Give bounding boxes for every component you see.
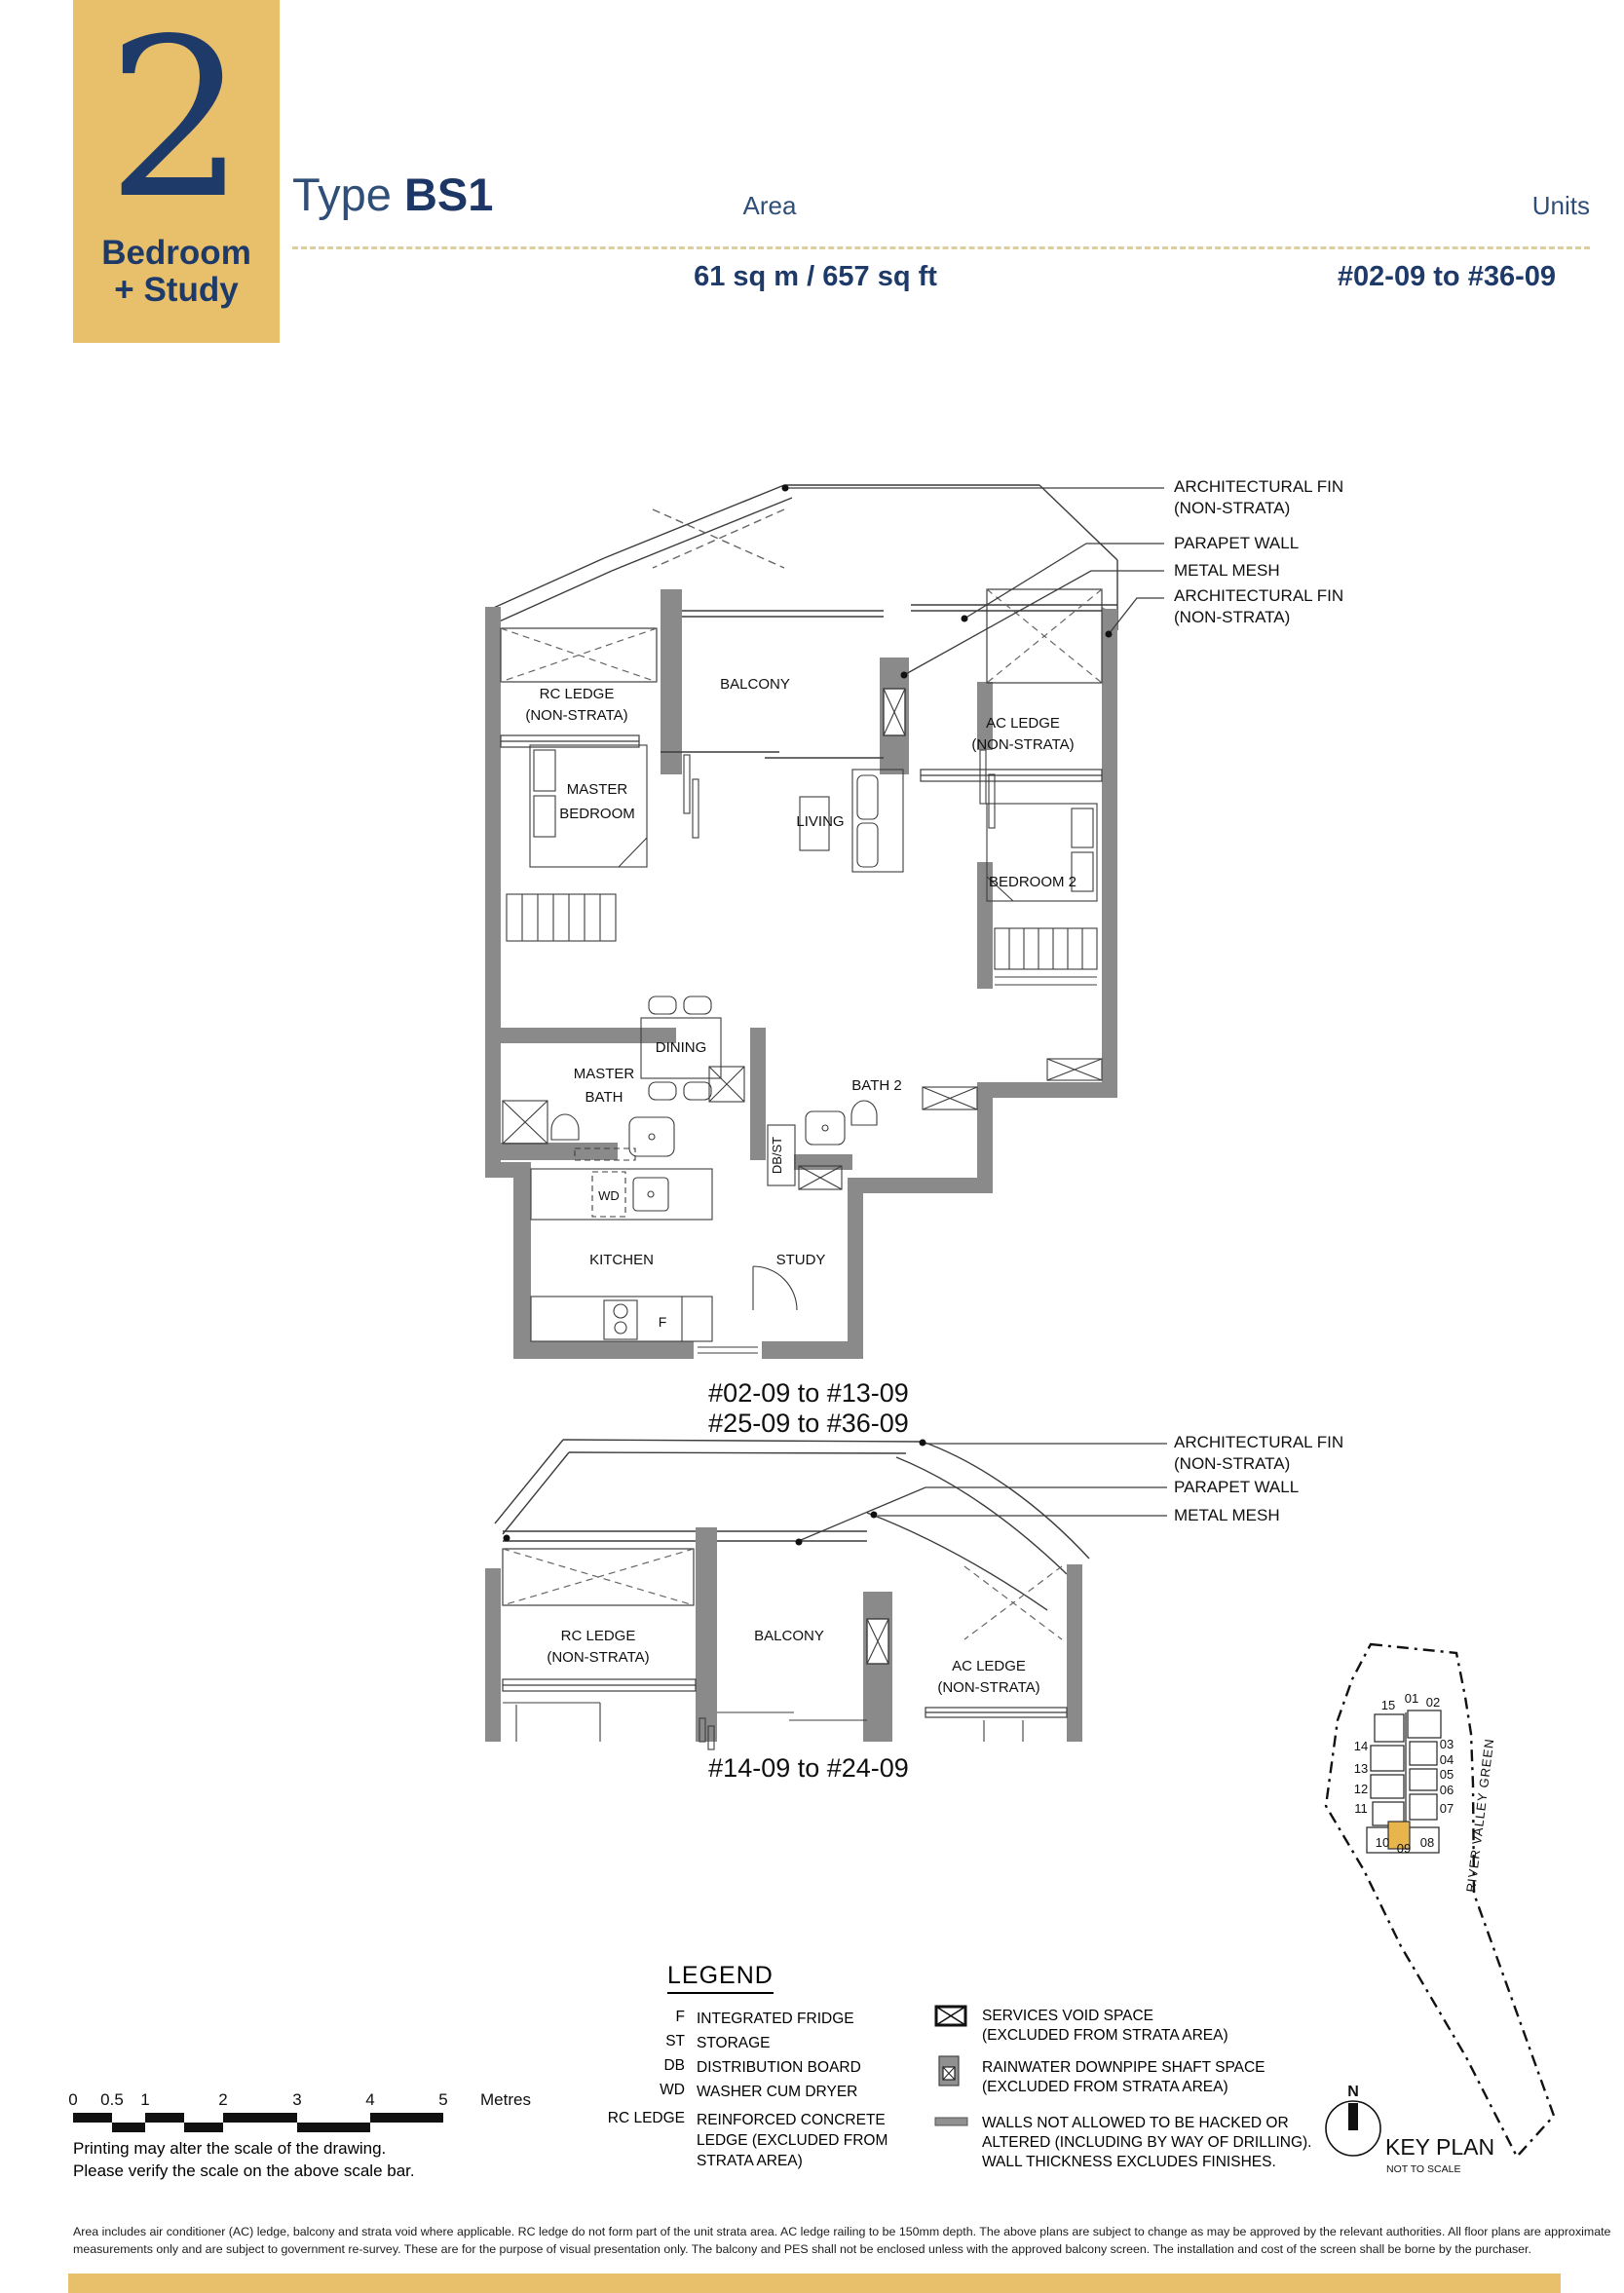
label-bedroom2: BEDROOM 2 <box>989 874 1076 890</box>
legend-desc-f: INTEGRATED FRIDGE <box>697 2009 854 2029</box>
svg-text:0: 0 <box>68 2090 77 2109</box>
cutoff-room-lines <box>503 1703 1023 1749</box>
label-wd: WD <box>598 1188 620 1203</box>
area-value: 61 sq m / 657 sq ft <box>645 261 986 293</box>
label-rc-ledge-p2: RC LEDGE <box>561 1628 636 1644</box>
legend-key-wd: WD <box>595 2082 685 2099</box>
legend-key-db: DB <box>595 2057 685 2075</box>
unit-07: 07 <box>1440 1801 1454 1816</box>
unit-15: 15 <box>1381 1698 1395 1712</box>
scale-unit: Metres <box>480 2090 531 2109</box>
label-master-bath-2: BATH <box>585 1089 623 1106</box>
label-living: LIVING <box>796 813 844 830</box>
scale-note-1: Printing may alter the scale of the draw… <box>73 2139 386 2159</box>
fin-roof-outline-2 <box>495 1440 1089 1610</box>
label-rc-ledge-2: (NON-STRATA) <box>525 707 627 724</box>
rainwater-downpipe-icon <box>938 2055 960 2086</box>
unit-03: 03 <box>1440 1737 1454 1751</box>
scale-bar-labels: 0 0.5 1 2 3 4 5 Metres <box>68 2090 531 2109</box>
road-label: RIVER VALLEY GREEN <box>1463 1738 1496 1894</box>
key-plan: 15 01 02 14 03 13 04 05 12 06 11 07 10 0… <box>1320 1636 1622 2201</box>
unit-05: 05 <box>1440 1767 1454 1782</box>
unit-14: 14 <box>1354 1739 1368 1753</box>
svg-text:5: 5 <box>438 2090 447 2109</box>
callout-dots <box>782 485 1113 679</box>
walls <box>485 589 1117 1359</box>
parapet-lines <box>661 605 1117 617</box>
label-master-bath: MASTER <box>574 1066 635 1082</box>
unit-12: 12 <box>1354 1782 1368 1796</box>
master-bed <box>507 745 699 941</box>
unit-10: 10 <box>1376 1835 1389 1850</box>
svg-text:1: 1 <box>140 2090 149 2109</box>
bedroom2-furniture <box>987 804 1097 985</box>
label-study: STUDY <box>776 1252 826 1268</box>
scale-bar: 0 0.5 1 2 3 4 5 Metres <box>54 2087 541 2141</box>
legend-rainwater: RAINWATER DOWNPIPE SHAFT SPACE(EXCLUDED … <box>982 2058 1265 2097</box>
north-label: N <box>1347 2084 1359 2100</box>
legend-desc-rcledge: REINFORCED CONCRETE LEDGE (EXCLUDED FROM… <box>697 2110 888 2171</box>
legend-desc-wd: WASHER CUM DRYER <box>697 2082 857 2102</box>
svg-text:2: 2 <box>218 2090 227 2109</box>
label-kitchen: KITCHEN <box>589 1252 654 1268</box>
label-master-bedroom: MASTER <box>567 781 628 798</box>
scale-note-2: Please verify the scale on the above sca… <box>73 2161 415 2181</box>
badge-label-line1: Bedroom <box>73 235 280 272</box>
label-ac-ledge-2: (NON-STRATA) <box>971 736 1074 753</box>
north-arrow-icon: N <box>1326 2084 1380 2156</box>
unit-09: 09 <box>1397 1841 1411 1856</box>
label-rc-ledge-p2-2: (NON-STRATA) <box>547 1649 649 1666</box>
legend-key-f: F <box>595 2009 685 2026</box>
keyplan-subtitle: NOT TO SCALE <box>1386 2163 1460 2175</box>
callout-fin-p2: ARCHITECTURAL FIN(NON-STRATA) <box>1174 1432 1343 1475</box>
callout-parapet-p2: PARAPET WALL <box>1174 1477 1299 1498</box>
parapet-lines-2 <box>503 1531 867 1541</box>
legend-desc-st: STORAGE <box>697 2033 771 2053</box>
balcony-sliding-door <box>661 752 884 758</box>
units-column-label: Units <box>1532 191 1590 221</box>
units-value: #02-09 to #36-09 <box>1338 261 1556 293</box>
svg-text:4: 4 <box>365 2090 374 2109</box>
legend-services-void: SERVICES VOID SPACE(EXCLUDED FROM STRATA… <box>982 2007 1228 2046</box>
badge-label-line2: + Study <box>73 272 280 309</box>
label-fridge: F <box>659 1314 667 1330</box>
keyplan-title: KEY PLAN <box>1385 2134 1494 2160</box>
floorplan-page: 2 Bedroom + Study Type BS1 Area Units 61… <box>0 0 1624 2293</box>
floor-plan-upper: RC LEDGE (NON-STRATA) BALCONY AC LEDGE (… <box>458 443 1169 1417</box>
label-dbst: DB/ST <box>770 1137 784 1174</box>
label-ac-ledge-p2: AC LEDGE <box>952 1658 1026 1674</box>
label-ac-ledge: AC LEDGE <box>986 715 1060 732</box>
plan2-caption: #14-09 to #24-09 <box>662 1753 955 1784</box>
floor-plan-lower: RC LEDGE (NON-STRATA) BALCONY AC LEDGE (… <box>438 1420 1169 1756</box>
callout-parapet1: PARAPET WALL <box>1174 533 1299 554</box>
svg-text:3: 3 <box>292 2090 301 2109</box>
type-title: Type BS1 <box>292 168 493 221</box>
svg-text:0.5: 0.5 <box>100 2090 124 2109</box>
rc-ledge-hatch-2 <box>503 1549 696 1691</box>
label-ac-ledge-p2-2: (NON-STRATA) <box>937 1679 1039 1696</box>
header-divider <box>292 246 1590 249</box>
unit-06: 06 <box>1440 1783 1454 1797</box>
legend-title: LEGEND <box>667 1962 774 1994</box>
area-column-label: Area <box>682 191 857 221</box>
label-rc-ledge: RC LEDGE <box>540 686 615 702</box>
callout-leaders-2 <box>801 1444 1167 1540</box>
unit-13: 13 <box>1354 1761 1368 1776</box>
label-bath2: BATH 2 <box>851 1077 901 1094</box>
unit-11: 11 <box>1354 1801 1368 1816</box>
services-void-2 <box>867 1619 888 1664</box>
badge-number: 2 <box>73 6 280 235</box>
legend-protected-wall: WALLS NOT ALLOWED TO BE HACKED ORALTERED… <box>982 2114 1311 2172</box>
scale-bar-segments <box>73 2113 443 2132</box>
unit-02: 02 <box>1426 1695 1440 1710</box>
unit-04: 04 <box>1440 1752 1454 1767</box>
callout-mesh1: METAL MESH <box>1174 560 1280 582</box>
legend-key-st: ST <box>595 2033 685 2050</box>
callout-fin2: ARCHITECTURAL FIN(NON-STRATA) <box>1174 585 1343 628</box>
callout-fin1: ARCHITECTURAL FIN(NON-STRATA) <box>1174 476 1343 519</box>
disclaimer: Area includes air conditioner (AC) ledge… <box>73 2224 1573 2258</box>
unit-type-badge: 2 Bedroom + Study <box>73 0 280 343</box>
services-void-icon <box>934 2005 969 2028</box>
services-void <box>884 689 905 735</box>
unit-01: 01 <box>1405 1691 1418 1706</box>
bottom-accent-bar <box>68 2274 1561 2293</box>
callout-mesh-p2: METAL MESH <box>1174 1505 1280 1526</box>
label-dining: DINING <box>656 1039 707 1056</box>
legend-key-rcledge: RC LEDGE <box>595 2110 685 2127</box>
label-balcony: BALCONY <box>720 676 790 693</box>
protected-wall-icon <box>934 2116 969 2127</box>
label-master-bedroom-2: BEDROOM <box>559 806 635 822</box>
type-label: Type <box>292 169 404 220</box>
label-balcony-p2: BALCONY <box>754 1628 824 1644</box>
legend-desc-db: DISTRIBUTION BOARD <box>697 2057 861 2078</box>
type-code: BS1 <box>404 169 493 220</box>
unit-08: 08 <box>1420 1835 1434 1850</box>
